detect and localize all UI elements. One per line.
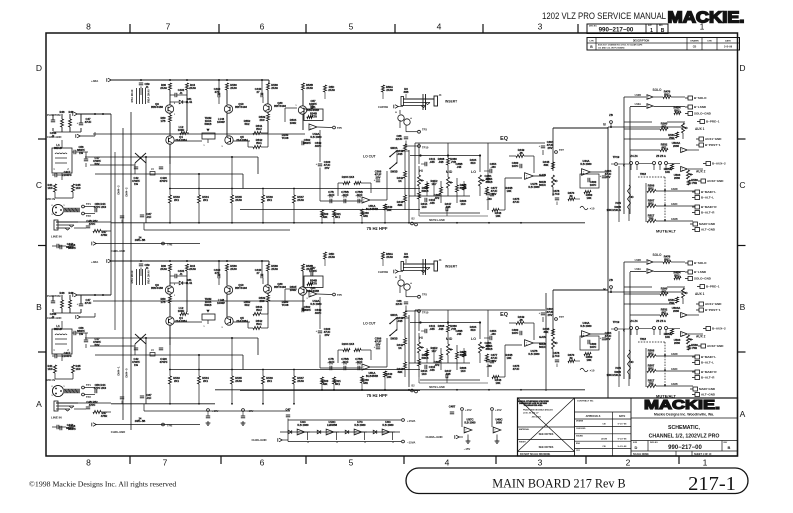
svg-text:10K: 10K xyxy=(506,189,511,193)
svg-text:B: B xyxy=(661,28,665,34)
svg-text:2K40: 2K40 xyxy=(230,267,237,271)
svg-text:B−POST−1: B−POST−1 xyxy=(705,143,721,147)
svg-text:MATERIAL: MATERIAL xyxy=(519,428,530,431)
svg-text:R46: R46 xyxy=(59,110,65,114)
svg-text:CH48A−GND: CH48A−GND xyxy=(425,435,442,439)
svg-text:17B: 17B xyxy=(160,119,165,123)
svg-text:TP19: TP19 xyxy=(613,320,620,324)
svg-text:JP2: JP2 xyxy=(435,363,440,367)
svg-text:TP7: TP7 xyxy=(559,315,564,319)
svg-text:C: C xyxy=(36,180,42,190)
svg-text:2K0: 2K0 xyxy=(259,118,265,122)
svg-text:MID: MID xyxy=(446,337,453,341)
svg-text:FINISH: FINISH xyxy=(519,442,526,444)
svg-text:ECN 2517: CHANGE R11 & R12, TO: ECN 2517: CHANGE R11 & R12, TO CLEAR CAP… xyxy=(598,44,643,47)
svg-text:MUTE/ALT: MUTE/ALT xyxy=(656,229,676,234)
svg-text:TP1: TP1 xyxy=(86,202,91,206)
svg-text:+15V: +15V xyxy=(212,409,219,413)
svg-text:6K1: 6K1 xyxy=(661,145,667,149)
svg-text:47UF: 47UF xyxy=(513,367,520,371)
svg-text:Z4 Z4: Z4 Z4 xyxy=(630,154,638,158)
svg-text:CHK: CHK xyxy=(707,41,712,43)
svg-text:LM4558: LM4558 xyxy=(327,423,338,427)
svg-text:680PF: 680PF xyxy=(303,308,311,312)
svg-text:+: + xyxy=(316,162,318,166)
svg-text:2K49: 2K49 xyxy=(160,86,167,90)
svg-text:2K49: 2K49 xyxy=(189,86,196,90)
svg-text:J4B: J4B xyxy=(438,160,443,164)
svg-text:25V: 25V xyxy=(376,342,381,346)
svg-text:LEON: LEON xyxy=(601,438,607,440)
svg-text:5: 5 xyxy=(349,458,354,468)
svg-text:Z4 Z4: Z4 Z4 xyxy=(630,319,638,323)
svg-text:DM4−3: DM4−3 xyxy=(117,185,121,194)
svg-text:6: 6 xyxy=(260,22,265,32)
svg-text:SW2B: SW2B xyxy=(390,338,397,341)
svg-text:MIC IN: MIC IN xyxy=(47,197,56,201)
svg-text:.J33: .J33 xyxy=(486,364,492,368)
svg-text:.J33: .J33 xyxy=(490,332,496,336)
svg-text:1K78: 1K78 xyxy=(310,281,317,285)
svg-text:3: 3 xyxy=(538,458,543,468)
svg-text:6K3: 6K3 xyxy=(470,328,476,332)
svg-text:4.7UF: 4.7UF xyxy=(552,354,560,358)
svg-text:5.B 2060: 5.B 2060 xyxy=(580,324,592,328)
svg-text:BEAD: BEAD xyxy=(54,327,62,331)
svg-text:+: + xyxy=(539,144,541,148)
svg-text:2K1: 2K1 xyxy=(174,198,180,202)
svg-text:A: A xyxy=(740,409,746,419)
svg-text:CFO: CFO xyxy=(576,450,581,452)
svg-text:SHEET 1 OF 10: SHEET 1 OF 10 xyxy=(694,453,712,456)
svg-text:SOLO−GND: SOLO−GND xyxy=(694,277,712,281)
svg-text:AUX1−GND: AUX1−GND xyxy=(705,137,722,141)
svg-text:AUX2−GND: AUX2−GND xyxy=(707,179,724,183)
svg-text:47UF: 47UF xyxy=(85,301,92,305)
svg-text:AUX1−GND: AUX1−GND xyxy=(705,302,722,306)
svg-text:B: B xyxy=(603,288,606,292)
svg-text:27: 27 xyxy=(256,90,260,94)
svg-text:10PF: 10PF xyxy=(512,331,519,335)
svg-text:SOLO: SOLO xyxy=(652,253,662,257)
svg-text:C: C xyxy=(739,180,745,190)
svg-text:2200PF: 2200PF xyxy=(62,354,72,358)
svg-text:BK1: BK1 xyxy=(256,322,262,326)
svg-text:B: B xyxy=(740,302,746,312)
svg-text:39: 39 xyxy=(569,356,573,360)
svg-text:+: + xyxy=(484,191,486,195)
svg-text:470PF: 470PF xyxy=(159,179,167,183)
svg-text:LO: LO xyxy=(471,170,476,174)
svg-text:1: 1 xyxy=(703,458,708,468)
svg-text:2K49: 2K49 xyxy=(271,86,278,90)
svg-text:DRAWN: DRAWN xyxy=(690,40,699,43)
svg-text:U16A: U16A xyxy=(635,268,642,271)
svg-text:2K49: 2K49 xyxy=(235,198,242,202)
svg-text:.045: .045 xyxy=(429,327,435,331)
svg-text:2K40: 2K40 xyxy=(230,86,237,90)
svg-text:+: + xyxy=(77,302,79,306)
svg-text:1K3: 1K3 xyxy=(460,369,466,373)
svg-text:43K: 43K xyxy=(363,214,368,218)
svg-text:50V: 50V xyxy=(343,363,348,366)
svg-text:BEAD: BEAD xyxy=(54,146,62,150)
svg-text:SOLO: SOLO xyxy=(652,88,662,92)
svg-text:2K49: 2K49 xyxy=(160,267,167,271)
svg-text:×10: ×10 xyxy=(590,369,595,373)
svg-text:2K49: 2K49 xyxy=(235,379,242,383)
svg-text:B−PRE−1: B−PRE−1 xyxy=(706,120,720,124)
svg-text:2K49: 2K49 xyxy=(189,267,196,271)
svg-text:1%: 1% xyxy=(79,332,84,336)
svg-text:2K49: 2K49 xyxy=(328,255,335,259)
svg-text:10KC/10LA: 10KC/10LA xyxy=(606,373,621,377)
svg-text:BBT4403: BBT4403 xyxy=(235,286,247,290)
svg-text:50V: 50V xyxy=(329,196,334,199)
svg-text:5.B 2060: 5.B 2060 xyxy=(297,423,309,427)
svg-text:1K0: 1K0 xyxy=(47,367,53,371)
svg-text:1K3: 1K3 xyxy=(421,372,427,376)
svg-text:TPB: TPB xyxy=(167,424,172,428)
svg-text:1K3: 1K3 xyxy=(421,205,427,209)
svg-text:47PF 2K0: 47PF 2K0 xyxy=(94,205,107,209)
svg-text:D: D xyxy=(635,445,638,450)
svg-text:TC38: TC38 xyxy=(282,303,289,307)
svg-text:CHANNEL 1/2, 1202VLZ PRO: CHANNEL 1/2, 1202VLZ PRO xyxy=(649,434,720,440)
svg-text:FRACTIONS DECIMALS ANGLES: FRACTIONS DECIMALS ANGLES xyxy=(523,409,553,412)
svg-text:5.B 2060: 5.B 2060 xyxy=(528,352,540,356)
svg-text:9−23−98: 9−23−98 xyxy=(618,446,627,448)
svg-text:39K: 39K xyxy=(397,370,402,374)
svg-text:DATE: DATE xyxy=(619,415,626,418)
svg-text:B: B xyxy=(36,302,42,312)
svg-text:50KB: 50KB xyxy=(421,189,428,193)
svg-text:ALT−GND: ALT−GND xyxy=(701,228,716,232)
svg-text:GN3B: GN3B xyxy=(671,383,678,386)
svg-text:1K0: 1K0 xyxy=(75,367,81,371)
svg-text:J4B: J4B xyxy=(438,327,443,331)
svg-text:B: B xyxy=(603,123,606,127)
svg-text:680PF: 680PF xyxy=(303,141,311,145)
svg-text:47PF 2K0: 47PF 2K0 xyxy=(94,386,107,390)
svg-text:B−POST−1: B−POST−1 xyxy=(705,308,721,312)
svg-text:TP5: TP5 xyxy=(337,293,342,297)
svg-text:10K: 10K xyxy=(586,358,591,362)
svg-text:B−LSND: B−LSND xyxy=(694,270,707,274)
svg-text:2K1: 2K1 xyxy=(267,379,273,383)
svg-text:CB: CB xyxy=(602,424,606,426)
svg-text:2K49: 2K49 xyxy=(306,86,313,90)
svg-text:BK1: BK1 xyxy=(664,92,670,96)
svg-text:AUX 1: AUX 1 xyxy=(695,292,705,296)
svg-text:ENG: ENG xyxy=(576,443,581,445)
svg-text:10K: 10K xyxy=(495,214,500,218)
svg-text:DRAWN: DRAWN xyxy=(576,420,584,423)
svg-text:.045: .045 xyxy=(429,368,435,372)
svg-text:BR1: BR1 xyxy=(648,201,654,205)
svg-text:6: 6 xyxy=(260,458,265,468)
svg-text:7: 7 xyxy=(166,22,171,32)
svg-text:10PF: 10PF xyxy=(590,345,597,349)
svg-text:©1998 Mackie Designs Inc. All: ©1998 Mackie Designs Inc. All rights res… xyxy=(29,480,176,489)
svg-text:TB1B: TB1B xyxy=(640,339,646,341)
svg-text:10K: 10K xyxy=(586,196,591,200)
svg-text:43K: 43K xyxy=(363,381,368,385)
svg-text:BBT4403: BBT4403 xyxy=(274,285,286,289)
svg-text:BLB455B: BLB455B xyxy=(366,207,378,211)
svg-text:2060: 2060 xyxy=(674,176,681,180)
svg-text:2K49: 2K49 xyxy=(297,379,304,383)
svg-text:10K: 10K xyxy=(665,335,670,339)
svg-text:75R: 75R xyxy=(692,346,697,350)
svg-text:TP19: TP19 xyxy=(613,155,620,159)
svg-text:DATE: DATE xyxy=(725,40,731,43)
svg-text:DM4−0: DM4−0 xyxy=(125,368,129,377)
svg-text:1K78: 1K78 xyxy=(310,114,317,118)
svg-text:47PF: 47PF xyxy=(89,222,96,226)
svg-text:4.7UF: 4.7UF xyxy=(552,192,560,196)
svg-text:+: + xyxy=(600,174,602,178)
svg-text:B−LSND: B−LSND xyxy=(694,105,707,109)
svg-text:47UF: 47UF xyxy=(513,200,520,204)
svg-text:TP3: TP3 xyxy=(422,128,427,132)
svg-text:17B: 17B xyxy=(160,300,165,304)
svg-text:CH455B: CH455B xyxy=(378,105,388,109)
svg-text:10K: 10K xyxy=(665,170,670,174)
svg-text:39: 39 xyxy=(569,194,573,198)
svg-text:10PF: 10PF xyxy=(512,164,519,168)
svg-text:25V: 25V xyxy=(548,313,553,317)
svg-text:GAIN: GAIN xyxy=(539,335,546,339)
svg-text:BK2: BK2 xyxy=(256,308,262,312)
svg-text:BK1: BK1 xyxy=(664,257,670,261)
svg-text:2060: 2060 xyxy=(673,309,680,313)
svg-text:5.B 2060: 5.B 2060 xyxy=(464,420,476,424)
svg-text:75R: 75R xyxy=(692,181,697,185)
svg-text:BR1: BR1 xyxy=(648,186,654,190)
svg-text:217-1: 217-1 xyxy=(688,473,736,495)
svg-text:GN3C: GN3C xyxy=(671,368,678,371)
svg-text:J1F: J1F xyxy=(147,215,152,219)
svg-text:50KC: 50KC xyxy=(539,345,546,349)
svg-text:TB1B: TB1B xyxy=(640,174,646,176)
svg-text:Z5 Z5 A: Z5 Z5 A xyxy=(656,154,666,158)
svg-text:MACKIE.: MACKIE. xyxy=(668,9,745,26)
svg-text:AUX 1: AUX 1 xyxy=(695,127,705,131)
svg-text:RBA 2K49: RBA 2K49 xyxy=(147,270,151,284)
svg-text:J1: J1 xyxy=(145,85,149,89)
svg-text:8: 8 xyxy=(86,22,91,32)
svg-text:SEE NOTES: SEE NOTES xyxy=(539,432,554,436)
svg-text:GAIN: GAIN xyxy=(539,173,546,177)
svg-text:+: + xyxy=(77,121,79,125)
svg-text:B−AUX−2: B−AUX−2 xyxy=(712,327,726,331)
svg-text:25V: 25V xyxy=(376,175,381,179)
svg-text:LTR: LTR xyxy=(589,41,594,43)
svg-text:B−MAIN−L: B−MAIN−L xyxy=(701,190,716,194)
svg-text:40PF: 40PF xyxy=(315,144,322,148)
svg-text:TP2: TP2 xyxy=(86,214,91,218)
svg-text:AUX 2: AUX 2 xyxy=(696,170,706,174)
svg-text:U16A: U16A xyxy=(635,103,642,106)
svg-text:B−ALT−R: B−ALT−R xyxy=(701,211,715,215)
svg-text:SOLO−GND: SOLO−GND xyxy=(694,112,712,116)
svg-text:100R: 100R xyxy=(178,309,185,313)
svg-text:470PF: 470PF xyxy=(159,360,167,364)
svg-text:DM4−2: DM4−2 xyxy=(125,187,129,196)
svg-text:+: + xyxy=(539,311,541,315)
svg-text:BR1: BR1 xyxy=(648,351,654,355)
svg-text:SW2B: SW2B xyxy=(390,171,397,174)
svg-text:1000P: 1000P xyxy=(217,301,225,305)
svg-text:BBT4403: BBT4403 xyxy=(235,105,247,109)
svg-text:SCHEMATIC,: SCHEMATIC, xyxy=(668,425,700,431)
svg-text:MUTE1−GND: MUTE1−GND xyxy=(429,386,445,389)
svg-text:CH48−GND: CH48−GND xyxy=(111,430,125,434)
svg-text:22UF: 22UF xyxy=(396,137,403,141)
svg-text:ZB: ZB xyxy=(609,278,613,282)
svg-text:J45: J45 xyxy=(457,332,462,336)
svg-text:5.B 2060: 5.B 2060 xyxy=(354,423,366,427)
svg-text:100R: 100R xyxy=(290,121,297,125)
svg-text:50V: 50V xyxy=(329,363,334,366)
svg-text:LINE IN: LINE IN xyxy=(51,235,62,239)
svg-text:±1/16 .XX ±.01 ±1°: ±1/16 .XX ±.01 ±1° xyxy=(523,412,539,414)
svg-text:MAIN−GND: MAIN−GND xyxy=(699,387,716,391)
svg-text:+15V: +15V xyxy=(495,408,502,412)
svg-text:B−PRE−1: B−PRE−1 xyxy=(706,285,720,289)
svg-text:Mackie Designs Inc. Woodinv: Mackie Designs Inc. Woodinville, Wa. xyxy=(654,413,714,417)
svg-text:1K0: 1K0 xyxy=(47,186,53,190)
svg-text:RBA 2K49: RBA 2K49 xyxy=(147,89,151,103)
svg-text:CB: CB xyxy=(693,46,697,49)
svg-text:JP2: JP2 xyxy=(435,196,440,200)
svg-text:U16B: U16B xyxy=(635,94,642,97)
svg-text:2060: 2060 xyxy=(673,144,680,148)
svg-text:10KC/10LA: 10KC/10LA xyxy=(606,208,621,212)
svg-text:GN3C: GN3C xyxy=(671,203,678,206)
svg-text:R48: R48 xyxy=(68,291,74,295)
svg-text:30K: 30K xyxy=(543,163,548,167)
svg-text:DESCRIPTION: DESCRIPTION xyxy=(633,40,650,43)
svg-text:1K0: 1K0 xyxy=(75,186,81,190)
svg-text:6K1: 6K1 xyxy=(661,289,667,293)
svg-text:B−SOLO: B−SOLO xyxy=(694,261,707,265)
svg-text:1%: 1% xyxy=(134,182,139,186)
svg-text:5.B 2060: 5.B 2060 xyxy=(382,423,394,427)
svg-text:75 Hz HPF: 75 Hz HPF xyxy=(366,226,387,231)
svg-text:3−8−99: 3−8−99 xyxy=(724,46,733,49)
svg-text:D: D xyxy=(739,63,745,73)
svg-text:.J33: .J33 xyxy=(486,197,492,201)
svg-text:MID: MID xyxy=(446,170,453,174)
svg-text:J1: J1 xyxy=(145,266,149,270)
svg-text:TP3: TP3 xyxy=(422,293,427,297)
svg-text:100R: 100R xyxy=(290,288,297,292)
svg-text:2: 2 xyxy=(626,458,631,468)
svg-text:75R: 75R xyxy=(648,216,653,220)
svg-text:2K49: 2K49 xyxy=(328,88,335,92)
svg-text:.045: .045 xyxy=(429,201,435,205)
svg-text:B−ALT−L: B−ALT−L xyxy=(701,196,714,200)
svg-text:2K49: 2K49 xyxy=(386,255,393,259)
svg-text:JB: JB xyxy=(519,318,523,322)
svg-text:100R: 100R xyxy=(178,128,185,132)
svg-text:1K7: 1K7 xyxy=(431,349,437,353)
svg-text:B−ALT−L: B−ALT−L xyxy=(701,361,714,365)
svg-text:1K: 1K xyxy=(398,179,402,183)
svg-text:MUTE1−GND: MUTE1−GND xyxy=(429,219,445,222)
svg-text:22UF: 22UF xyxy=(396,302,403,306)
svg-text:BLB455B: BLB455B xyxy=(366,374,378,378)
svg-text:27: 27 xyxy=(256,271,260,275)
svg-text:10K: 10K xyxy=(506,356,511,360)
svg-text:+: + xyxy=(600,336,602,340)
svg-text:1%: 1% xyxy=(134,363,139,367)
svg-text:PAN: PAN xyxy=(615,366,621,370)
svg-text:2K1: 2K1 xyxy=(203,379,209,383)
svg-text:B−MAIN−R: B−MAIN−R xyxy=(701,370,717,374)
svg-text:7: 7 xyxy=(163,458,168,468)
svg-text:10K: 10K xyxy=(386,208,391,212)
svg-text:BBT4403: BBT4403 xyxy=(274,104,286,108)
svg-text:BK2: BK2 xyxy=(256,127,262,131)
svg-text:25V: 25V xyxy=(548,146,553,150)
svg-text:4: 4 xyxy=(437,22,442,32)
svg-text:6K3: 6K3 xyxy=(470,161,476,165)
svg-text:AUX 2: AUX 2 xyxy=(696,335,706,339)
svg-text:75 Hz HPF: 75 Hz HPF xyxy=(366,393,387,398)
svg-text:B−MAIN−L: B−MAIN−L xyxy=(701,355,716,359)
svg-text:2K1: 2K1 xyxy=(174,379,180,383)
svg-text:39K: 39K xyxy=(397,203,402,207)
svg-text:2K49: 2K49 xyxy=(271,267,278,271)
svg-text:TP2: TP2 xyxy=(86,395,91,399)
svg-text:GN3B: GN3B xyxy=(671,218,678,221)
svg-text:10PF: 10PF xyxy=(590,183,597,187)
svg-text:CH48−GND: CH48−GND xyxy=(252,438,267,442)
svg-text:.J33: .J33 xyxy=(490,165,496,169)
svg-text:MAIN BOARD 217 Rev B: MAIN BOARD 217 Rev B xyxy=(492,477,625,491)
svg-text:APPROVALS: APPROVALS xyxy=(586,415,601,418)
svg-text:CB: CB xyxy=(602,446,606,448)
svg-text:TP10: TP10 xyxy=(422,146,429,150)
svg-text:DM4−1: DM4−1 xyxy=(117,366,121,375)
svg-text:3: 3 xyxy=(538,22,543,32)
svg-text:MUTE/ALT: MUTE/ALT xyxy=(656,394,676,399)
svg-text:5K2: 5K2 xyxy=(244,303,250,307)
svg-text:TP1: TP1 xyxy=(86,383,91,387)
svg-text:BBF4458: BBF4458 xyxy=(151,105,163,109)
svg-text:GN3D: GN3D xyxy=(671,353,678,356)
svg-text:+: + xyxy=(316,329,318,333)
svg-text:R234 1K3: R234 1K3 xyxy=(342,175,355,179)
svg-text:8: 8 xyxy=(86,458,91,468)
svg-text:C47: C47 xyxy=(285,408,291,412)
svg-text:C11 AND C12, ON PC BOARD.: C11 AND C12, ON PC BOARD. xyxy=(598,47,625,50)
svg-text:DWG NO.: DWG NO. xyxy=(589,26,598,28)
svg-text:B−AUX−2: B−AUX−2 xyxy=(712,162,726,166)
svg-text:475R: 475R xyxy=(101,233,108,237)
svg-text:−15VA: −15VA xyxy=(407,441,415,445)
svg-text:R46: R46 xyxy=(59,291,65,295)
svg-text:SCALE NONE: SCALE NONE xyxy=(633,453,649,456)
svg-text:CHECKED: CHECKED xyxy=(576,428,586,430)
svg-text:HI: HI xyxy=(419,169,422,173)
svg-text:10K: 10K xyxy=(495,381,500,385)
svg-text:9−23−98: 9−23−98 xyxy=(618,438,627,440)
svg-text:+: + xyxy=(484,358,486,362)
